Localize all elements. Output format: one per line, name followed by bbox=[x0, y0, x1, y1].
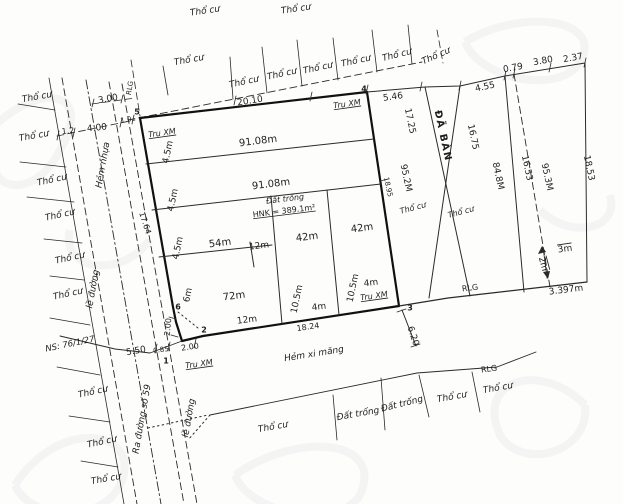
plot-type-label: Thổ cư bbox=[399, 199, 428, 216]
survey-map-svg: Thổ cưThổ cưThổ cưThổ cưThổ cưThổ cưThổ … bbox=[0, 0, 623, 504]
cadastral-survey-sketch: Thổ cưThổ cưThổ cưThổ cưThổ cưThổ cưThổ … bbox=[0, 0, 623, 504]
area-label: 95.2M bbox=[398, 163, 414, 192]
arrowhead bbox=[543, 271, 550, 279]
measurement-label: 3.80 bbox=[532, 55, 554, 68]
measurement-label: 4m bbox=[311, 302, 327, 314]
point-number-label: 2 bbox=[201, 326, 207, 335]
parcel-divider-line bbox=[333, 38, 338, 80]
main-parcel-boundary bbox=[367, 92, 399, 306]
measurement-label: 72m bbox=[222, 290, 246, 304]
plot-type-label: Thổ cư bbox=[189, 3, 222, 18]
point-number-label: 4 bbox=[361, 85, 367, 94]
measurement-label: 16.53 bbox=[519, 154, 534, 181]
cement-post-label: Trụ XM bbox=[185, 358, 214, 371]
measurement-label: 3m bbox=[557, 244, 573, 256]
leader-dotted bbox=[148, 415, 208, 428]
parcel-divider-line bbox=[408, 25, 412, 64]
measurement-label: 0.85 bbox=[153, 345, 170, 355]
plot-type-label: Đất trống bbox=[336, 405, 381, 423]
watermark-curve bbox=[465, 22, 584, 81]
measurement-label: 4.5m bbox=[171, 236, 186, 261]
measurement-label: 1.0 bbox=[120, 115, 132, 125]
measurement-label: 91.08m bbox=[238, 134, 277, 150]
plot-type-label: Thổ cư bbox=[436, 389, 469, 405]
measurement-label: 6m bbox=[182, 287, 195, 303]
measurement-label: 17.25 bbox=[402, 107, 417, 134]
parcel-divider-line bbox=[20, 162, 66, 167]
measurement-label: 4.5m bbox=[166, 188, 181, 213]
watermark-curve bbox=[540, 195, 611, 228]
plot-type-label: Đất trống bbox=[265, 191, 304, 206]
plot-type-label: Thổ cư bbox=[280, 1, 313, 16]
measurement-label: 10.5m bbox=[346, 273, 362, 303]
plot-type-label: Thổ cư bbox=[173, 52, 206, 68]
area-label: 84.8M bbox=[490, 161, 506, 190]
measurement-label: 42m bbox=[295, 231, 319, 245]
point-number-label: 6 bbox=[175, 303, 181, 312]
tick-mark bbox=[171, 335, 178, 337]
sold-strip-line bbox=[425, 87, 470, 296]
measurement-label: 10.5m bbox=[290, 284, 306, 314]
parcel-divider-line bbox=[163, 66, 168, 95]
note-label: RLG bbox=[461, 283, 478, 294]
measurement-label: 2.00 bbox=[181, 341, 200, 352]
parcel-divider-line bbox=[27, 197, 74, 202]
point-number-label: 5 bbox=[134, 108, 140, 117]
measurement-label: 54m bbox=[208, 237, 232, 251]
parcel-divider-line bbox=[50, 318, 90, 325]
parcel-divider-line bbox=[69, 416, 110, 422]
point-number-label: 3 bbox=[407, 304, 413, 313]
measurement-label: 18.53 bbox=[581, 154, 596, 181]
note-label: RLG bbox=[480, 363, 497, 374]
cement-post-label: Trụ XM bbox=[148, 127, 177, 140]
measurement-label: 3.00 bbox=[97, 93, 119, 106]
inner-parcel-line bbox=[327, 190, 339, 315]
plot-type-label: Thổ cư bbox=[420, 44, 453, 67]
note-label: NS: 76/1/27 bbox=[45, 334, 97, 354]
parcel-divider-line bbox=[472, 372, 480, 412]
plot-type-label: Thổ cư bbox=[44, 206, 77, 223]
plot-type-label: Thổ cư bbox=[18, 128, 51, 144]
note-label: RLG bbox=[125, 80, 135, 95]
strip-line bbox=[505, 76, 524, 292]
tick-mark bbox=[92, 99, 94, 107]
plot-type-label: Thổ cư bbox=[340, 52, 373, 69]
parcel-divider-line bbox=[230, 57, 233, 99]
watermark-curve bbox=[15, 438, 125, 504]
measurement-label: 91.08m bbox=[251, 177, 290, 193]
measurement-label: 5.50 bbox=[125, 345, 147, 358]
cement-post-label: Trụ XM bbox=[360, 290, 389, 303]
point-number-label: 1 bbox=[163, 357, 169, 366]
parcel-divider-line bbox=[50, 276, 84, 280]
arrowhead bbox=[538, 246, 546, 254]
plot-type-label: Thổ cư bbox=[52, 285, 85, 302]
measurement-label: 12m bbox=[236, 314, 257, 326]
parcel-divider-line bbox=[57, 367, 100, 375]
parcel-divider-line bbox=[81, 461, 118, 467]
measurement-label: 18.95 bbox=[382, 176, 394, 197]
measurement-label: 12m bbox=[248, 240, 269, 252]
parcel-divider-line bbox=[372, 30, 377, 72]
measurement-label: 6.20 bbox=[405, 325, 421, 347]
tick-mark bbox=[420, 82, 422, 91]
plot-type-label: Thổ cư bbox=[257, 419, 290, 435]
measurement-label: 2m bbox=[536, 256, 549, 273]
measurement-label: 4m bbox=[363, 278, 379, 290]
plot-type-label: Thổ cư bbox=[266, 65, 299, 82]
plot-type-label: Thổ cư bbox=[381, 46, 414, 64]
plot-type-label: Thổ cư bbox=[302, 59, 335, 76]
parcel-divider-line bbox=[297, 40, 302, 86]
measurement-label: 5.46 bbox=[382, 91, 404, 104]
parcel-divider-line bbox=[44, 239, 82, 243]
measurement-label: 2.00 bbox=[163, 318, 174, 337]
tick-mark bbox=[234, 96, 236, 105]
watermark-curve bbox=[235, 447, 364, 504]
alley-edge-line bbox=[210, 352, 536, 415]
tick-mark bbox=[310, 92, 312, 101]
measurement-label: 17.64 bbox=[137, 211, 153, 236]
measurement-label: 42m bbox=[350, 222, 374, 236]
road-name-label: Hẻm xi măng bbox=[283, 344, 345, 364]
area-label: 95.3M bbox=[539, 162, 555, 191]
tick-mark bbox=[397, 309, 406, 312]
road-name-label: Hẻm nhựa bbox=[94, 141, 113, 189]
note-label: HNK = 389.1m² bbox=[252, 203, 316, 220]
measurement-label: 16.75 bbox=[465, 123, 480, 150]
measurement-label: 1.2 bbox=[61, 126, 75, 136]
cement-post-label: Trụ XM bbox=[333, 98, 362, 111]
plot-type-label: Đất trống bbox=[380, 393, 425, 414]
plot-type-label: Thổ cư bbox=[228, 73, 261, 90]
leader-dotted bbox=[178, 312, 198, 328]
measurement-label: 20.10 bbox=[237, 94, 264, 108]
tick-mark bbox=[121, 95, 123, 103]
measurement-label: 18.24 bbox=[296, 321, 320, 333]
measurement-label: 4.00 bbox=[87, 122, 108, 134]
parcel-divider-line bbox=[262, 47, 267, 93]
